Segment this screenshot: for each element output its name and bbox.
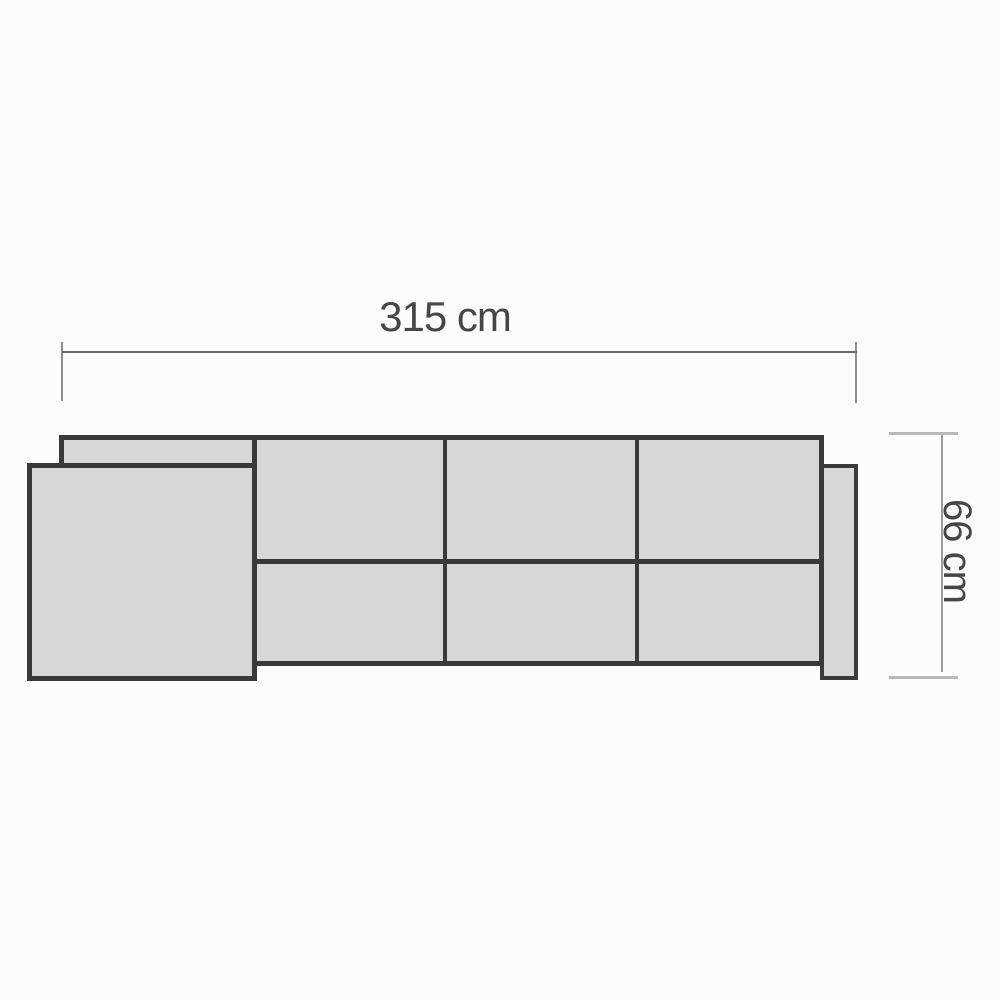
depth-dimension-tick-top [889,432,958,435]
diagram-canvas: 315 cm 66 cm [0,0,1000,1000]
depth-dimension-label: 66 cm [935,481,979,621]
cushion-divider-vertical-3 [635,435,639,666]
right-armrest-panel [820,464,858,680]
chaise-corner-section [27,463,257,681]
depth-dimension-tick-bottom [889,676,958,679]
cushion-divider-vertical-2 [443,435,447,666]
width-dimension-label: 315 cm [325,294,565,340]
width-dimension-line [62,351,857,353]
seat-back-divider-horizontal [252,559,824,564]
